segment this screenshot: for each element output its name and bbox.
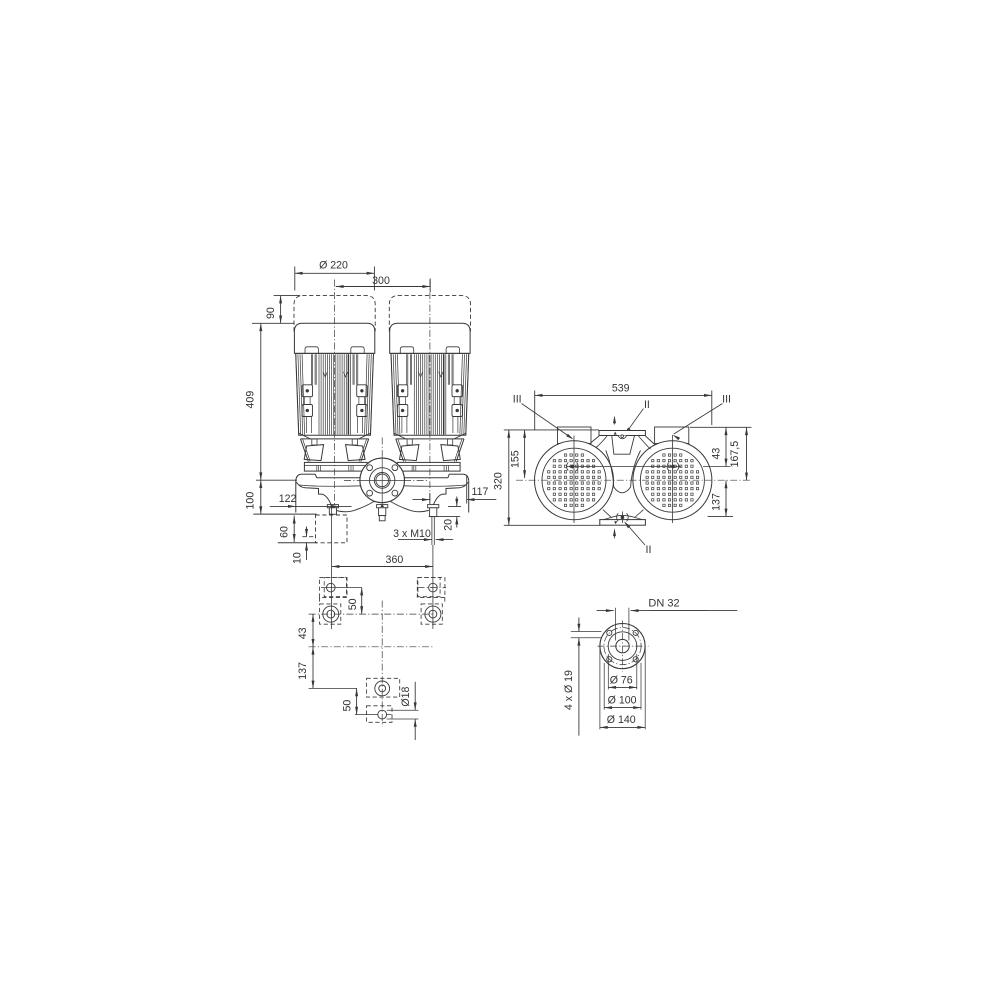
svg-text:II: II <box>644 399 650 411</box>
svg-text:3 x M10: 3 x M10 <box>393 528 431 540</box>
svg-text:50: 50 <box>347 598 359 610</box>
svg-text:43: 43 <box>711 448 723 460</box>
svg-text:539: 539 <box>612 383 630 395</box>
svg-text:Ø 76: Ø 76 <box>610 675 633 687</box>
svg-text:Ø 220: Ø 220 <box>319 260 348 272</box>
svg-text:20: 20 <box>442 519 454 531</box>
svg-text:167,5: 167,5 <box>729 441 741 468</box>
svg-text:4 x Ø 19: 4 x Ø 19 <box>563 670 575 710</box>
svg-text:Ø 100: Ø 100 <box>608 694 637 706</box>
svg-text:137: 137 <box>297 662 309 680</box>
svg-text:Ø 140: Ø 140 <box>607 714 636 726</box>
svg-text:137: 137 <box>711 493 723 511</box>
svg-text:60: 60 <box>278 526 290 538</box>
svg-text:43: 43 <box>297 627 309 639</box>
svg-text:100: 100 <box>245 492 257 510</box>
svg-text:II: II <box>646 544 652 556</box>
svg-text:320: 320 <box>492 472 504 490</box>
svg-text:50: 50 <box>341 700 353 712</box>
svg-text:360: 360 <box>386 554 404 566</box>
svg-text:Ø18: Ø18 <box>400 686 412 706</box>
svg-text:300: 300 <box>372 275 390 287</box>
svg-text:409: 409 <box>245 391 257 409</box>
svg-text:117: 117 <box>472 486 489 498</box>
svg-text:III: III <box>722 394 731 406</box>
svg-text:DN 32: DN 32 <box>648 597 679 609</box>
svg-text:155: 155 <box>509 450 521 468</box>
svg-text:90: 90 <box>265 307 277 319</box>
svg-text:III: III <box>513 394 522 406</box>
svg-text:122: 122 <box>279 493 297 505</box>
svg-text:10: 10 <box>292 552 304 564</box>
